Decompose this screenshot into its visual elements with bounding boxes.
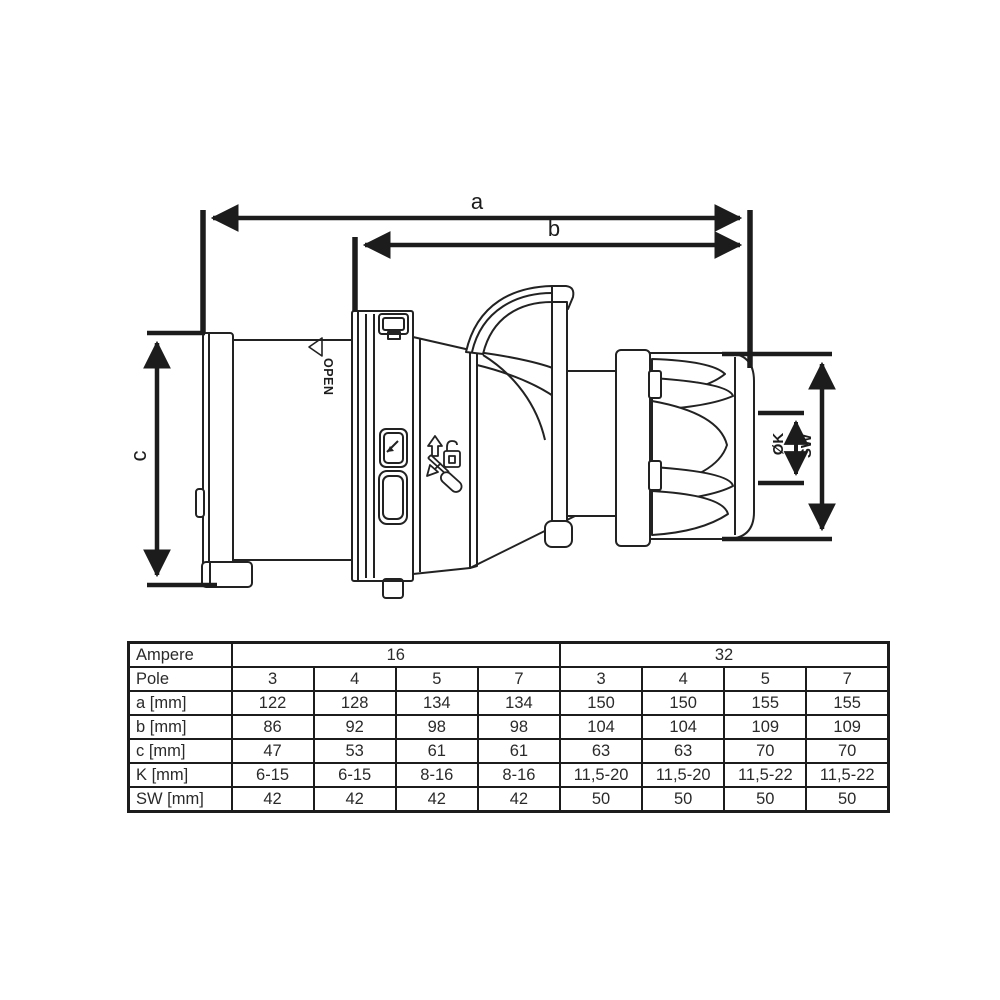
sw-cell: 50 <box>642 787 724 812</box>
a-cell: 122 <box>232 691 314 715</box>
a-cell: 155 <box>724 691 806 715</box>
pole-cell: 4 <box>642 667 724 691</box>
b-cell: 98 <box>396 715 478 739</box>
rear-cap-tab <box>196 489 204 517</box>
k-cell: 8-16 <box>396 763 478 787</box>
k-cell: 6-15 <box>314 763 396 787</box>
latch-arm <box>552 302 567 524</box>
table-row-ampere: Ampere 16 32 <box>129 643 889 668</box>
sw-cell: 42 <box>232 787 314 812</box>
c-cell: 70 <box>806 739 888 763</box>
a-cell: 134 <box>478 691 560 715</box>
technical-drawing: a b c ØK SW OPEN <box>0 0 1000 640</box>
row-label-sw: SW [mm] <box>129 787 232 812</box>
plug-drawing <box>196 286 754 598</box>
table-row-k: K [mm] 6-15 6-15 8-16 8-16 11,5-20 11,5-… <box>129 763 889 787</box>
k-cell: 11,5-22 <box>806 763 888 787</box>
latch <box>466 286 573 547</box>
dim-a-label: a <box>471 189 484 214</box>
pole-cell: 3 <box>560 667 642 691</box>
row-label-a: a [mm] <box>129 691 232 715</box>
c-cell: 47 <box>232 739 314 763</box>
b-cell: 104 <box>642 715 724 739</box>
c-cell: 63 <box>560 739 642 763</box>
row-label-b: b [mm] <box>129 715 232 739</box>
k-cell: 11,5-20 <box>642 763 724 787</box>
b-cell: 86 <box>232 715 314 739</box>
row-label-ampere: Ampere <box>129 643 232 668</box>
pole-cell: 3 <box>232 667 314 691</box>
sw-cell: 50 <box>560 787 642 812</box>
cable-gland <box>616 350 754 546</box>
dim-b-label: b <box>548 216 560 241</box>
row-label-pole: Pole <box>129 667 232 691</box>
dim-c-label: c <box>126 451 151 462</box>
a-cell: 134 <box>396 691 478 715</box>
c-cell: 61 <box>396 739 478 763</box>
ampere-32-cell: 32 <box>560 643 889 668</box>
k-cell: 11,5-22 <box>724 763 806 787</box>
table-row-c: c [mm] 47 53 61 61 63 63 70 70 <box>129 739 889 763</box>
plug-neck <box>560 371 618 516</box>
a-cell: 150 <box>642 691 724 715</box>
b-cell: 109 <box>806 715 888 739</box>
pole-cell: 5 <box>724 667 806 691</box>
k-cell: 11,5-20 <box>560 763 642 787</box>
gland-flange <box>616 350 650 546</box>
table-row-sw: SW [mm] 42 42 42 42 50 50 50 50 <box>129 787 889 812</box>
sw-cell: 42 <box>314 787 396 812</box>
sw-cell: 50 <box>724 787 806 812</box>
c-cell: 53 <box>314 739 396 763</box>
dim-sw-label: SW <box>798 433 815 458</box>
b-cell: 109 <box>724 715 806 739</box>
b-cell: 98 <box>478 715 560 739</box>
latch-foot <box>545 521 572 547</box>
spec-table: Ampere 16 32 Pole 3 4 5 7 3 4 5 7 a [mm]… <box>127 641 890 813</box>
pole-cell: 7 <box>478 667 560 691</box>
k-cell: 6-15 <box>232 763 314 787</box>
pole-cell: 4 <box>314 667 396 691</box>
a-cell: 128 <box>314 691 396 715</box>
sw-cell: 50 <box>806 787 888 812</box>
c-cell: 70 <box>724 739 806 763</box>
c-cell: 61 <box>478 739 560 763</box>
sw-cell: 42 <box>478 787 560 812</box>
collar-ring <box>352 311 413 598</box>
a-cell: 150 <box>560 691 642 715</box>
row-label-c: c [mm] <box>129 739 232 763</box>
ampere-16-cell: 16 <box>232 643 561 668</box>
k-cell: 8-16 <box>478 763 560 787</box>
table-row-pole: Pole 3 4 5 7 3 4 5 7 <box>129 667 889 691</box>
row-label-k: K [mm] <box>129 763 232 787</box>
b-cell: 92 <box>314 715 396 739</box>
page: a b c ØK SW OPEN Ampere 16 32 Pole 3 4 5… <box>0 0 1000 1000</box>
pole-cell: 5 <box>396 667 478 691</box>
open-label: OPEN <box>321 358 335 395</box>
pole-cell: 7 <box>806 667 888 691</box>
c-cell: 63 <box>642 739 724 763</box>
sw-cell: 42 <box>396 787 478 812</box>
a-cell: 155 <box>806 691 888 715</box>
latch-band <box>466 286 552 354</box>
b-cell: 104 <box>560 715 642 739</box>
dim-k-label: ØK <box>770 433 787 456</box>
table-row-b: b [mm] 86 92 98 98 104 104 109 109 <box>129 715 889 739</box>
table-row-a: a [mm] 122 128 134 134 150 150 155 155 <box>129 691 889 715</box>
